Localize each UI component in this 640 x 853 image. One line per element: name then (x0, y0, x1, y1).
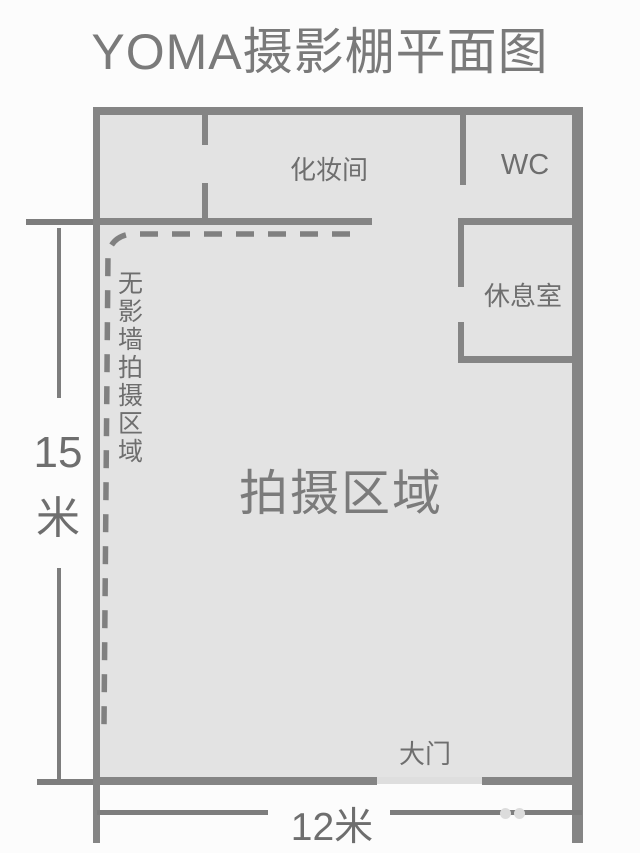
dim-left-line-lower (57, 568, 61, 780)
dim-bottom-line-left (97, 810, 268, 815)
partition-dressing-lower (202, 183, 208, 219)
label-wc: WC (495, 149, 555, 182)
label-shadowless-wall-area: 无影墙拍摄区域 (114, 263, 142, 473)
dim-left-value: 15 (30, 420, 86, 486)
partition-dressing-upper (202, 115, 208, 145)
label-shooting-area: 拍摄区域 (231, 454, 451, 525)
wall-bottom-left-segment (93, 777, 377, 785)
partition-wc (460, 115, 466, 185)
wall-rest-left-lower (458, 322, 464, 358)
wall-left (93, 107, 100, 843)
label-rest-room: 休息室 (483, 276, 563, 313)
dim-bottom-line-right (390, 810, 582, 815)
watermark-dot (500, 808, 511, 819)
wall-rest-bottom (458, 356, 572, 363)
wall-rest-top (458, 218, 572, 225)
dim-left-tick-bottom (37, 779, 93, 785)
dim-left-label: 15 米 (30, 420, 86, 552)
wall-rest-left-upper (458, 225, 464, 287)
dim-left-line-upper (57, 228, 61, 398)
wall-dressing-bottom (100, 218, 372, 225)
gate-threshold (377, 777, 482, 784)
label-gate: 大门 (395, 734, 455, 771)
dim-bottom-label: 12米 (280, 796, 384, 852)
watermark-dot (514, 808, 525, 819)
studio-floor (100, 115, 572, 778)
dim-left-unit: 米 (30, 486, 86, 552)
dim-left-tick-top (26, 219, 93, 225)
floor-plan-canvas: YOMA摄影棚平面图 15 米 12米 化妆间 WC 休息室 无影墙拍摄区域 拍… (0, 0, 640, 853)
label-dressing-room: 化妆间 (279, 150, 379, 187)
wall-top (93, 107, 583, 115)
wall-bottom-right-segment (482, 777, 583, 785)
wall-right (572, 107, 583, 843)
page-title: YOMA摄影棚平面图 (0, 12, 640, 84)
